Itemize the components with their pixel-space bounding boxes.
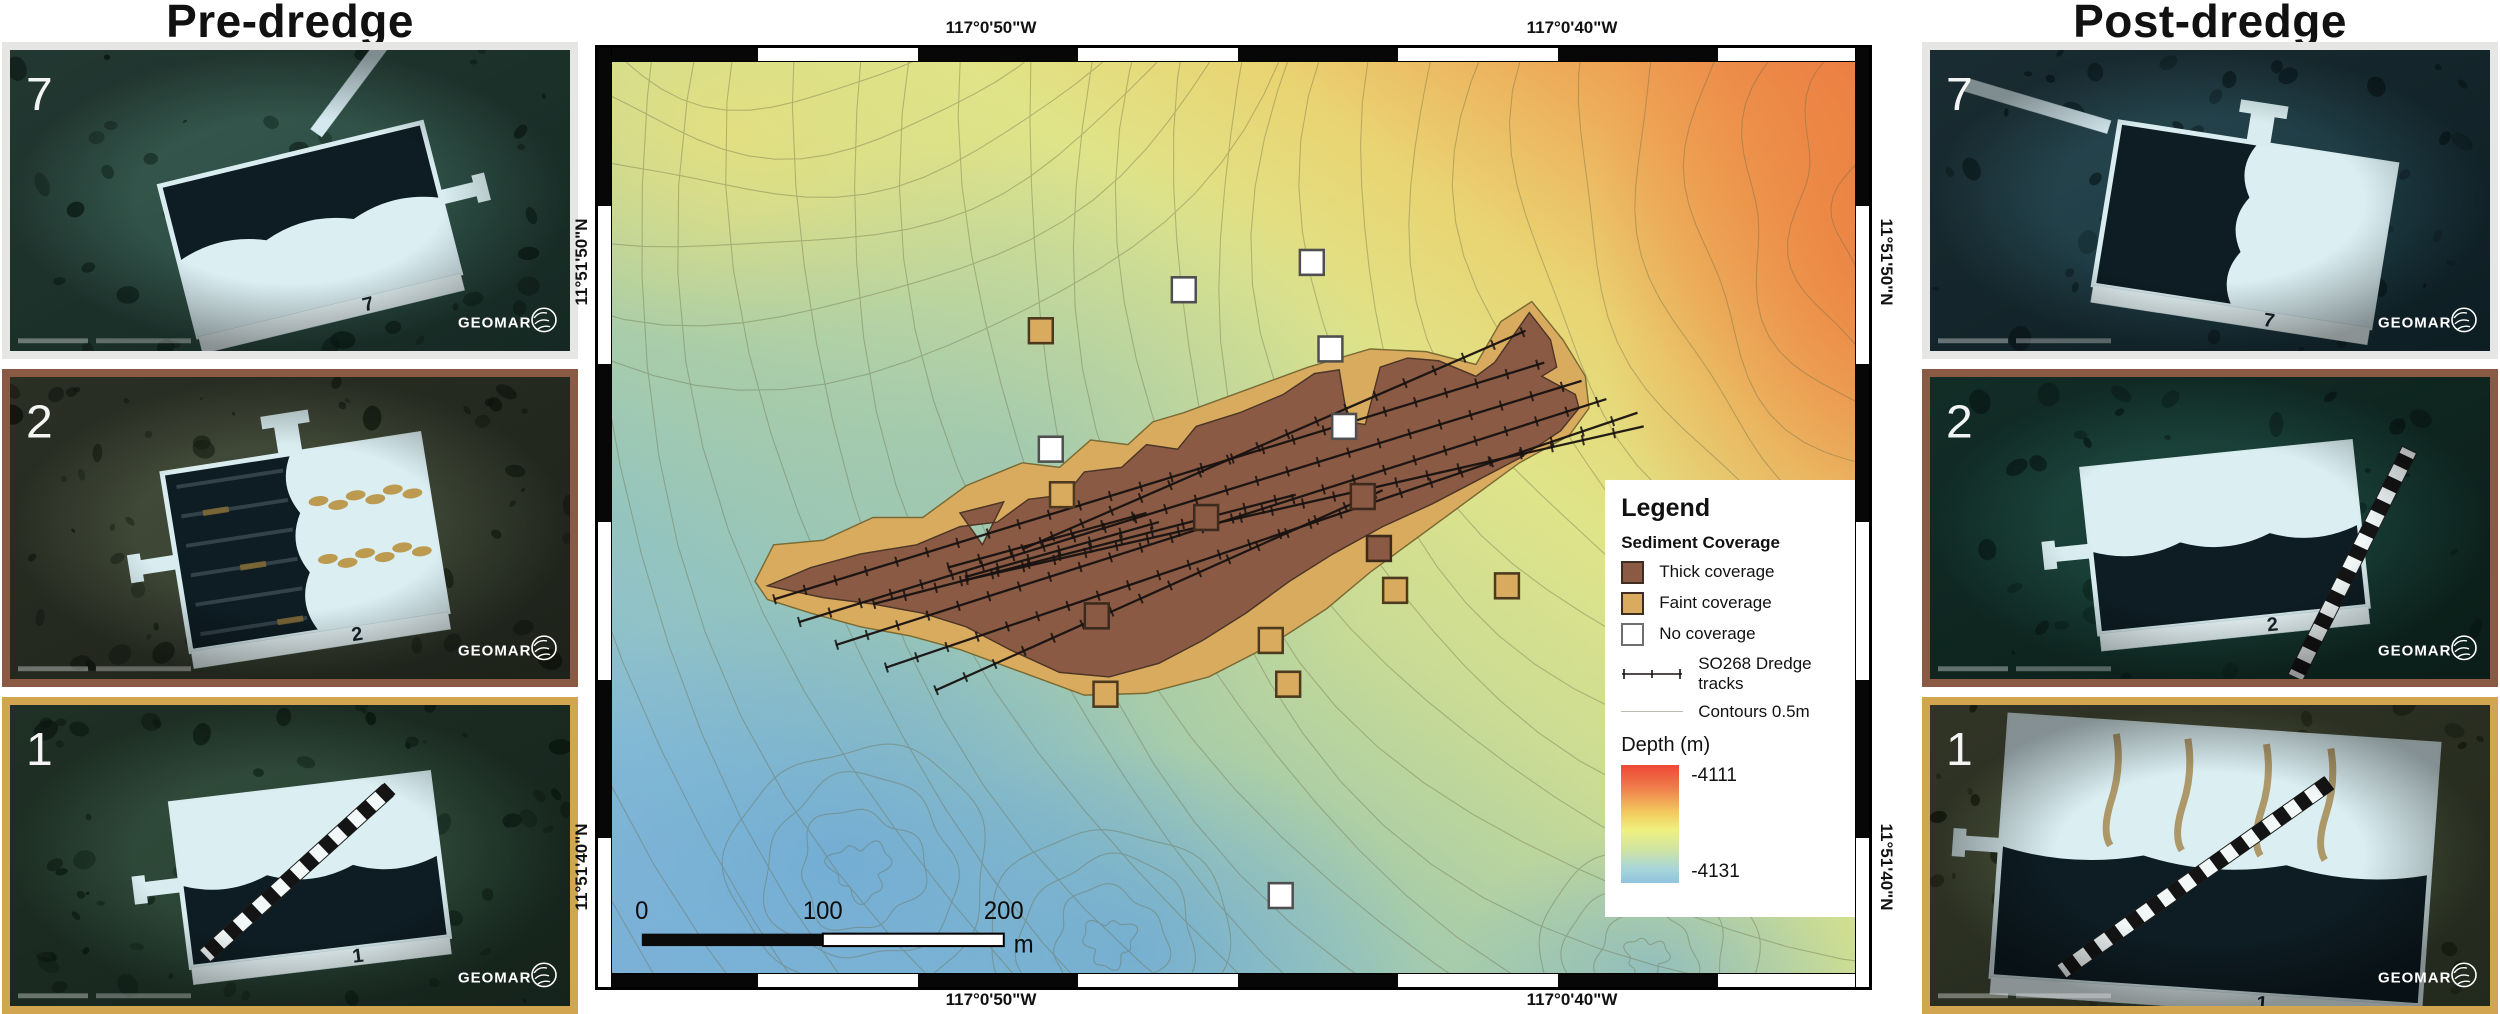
legend-item-contours: Contours 0.5m <box>1621 702 1842 722</box>
graticule-frame-bottom <box>597 973 1870 988</box>
sample-marker-none <box>1039 437 1063 462</box>
faint-coverage-label: Faint coverage <box>1659 593 1771 613</box>
photo-pre-1-frame: 11GEOMAR <box>2 697 578 1014</box>
sample-marker-faint <box>1094 682 1118 707</box>
svg-text:GEOMAR: GEOMAR <box>458 316 531 332</box>
svg-text:GEOMAR: GEOMAR <box>2378 644 2451 660</box>
sample-marker-thick <box>1367 536 1391 561</box>
photo-post-1-frame: 11GEOMAR <box>1922 697 2498 1014</box>
photo-pre-7: 77GEOMAR <box>10 50 570 351</box>
photo-post-7: 77GEOMAR <box>1930 50 2490 351</box>
no-coverage-label: No coverage <box>1659 624 1755 644</box>
svg-text:GEOMAR: GEOMAR <box>458 644 531 660</box>
sample-marker-faint <box>1495 573 1519 598</box>
legend-item-none: No coverage <box>1621 623 1842 646</box>
sample-marker-none <box>1269 883 1293 908</box>
figure: Pre-dredge 77GEOMAR 22GEOMAR 11GEOMAR Po… <box>0 0 2500 1014</box>
thick-coverage-swatch <box>1621 561 1644 584</box>
lon-label-top-left: 117°0'50"W <box>946 18 1037 38</box>
lat-label-left-bottom: 11°51'40"N <box>572 824 592 911</box>
sample-marker-none <box>1319 337 1343 362</box>
photo-pre-2-frame: 22GEOMAR <box>2 369 578 687</box>
post-dredge-title: Post-dredge <box>1922 0 2498 48</box>
contours-label: Contours 0.5m <box>1698 702 1810 722</box>
graticule-frame-left <box>597 47 612 988</box>
legend-item-faint: Faint coverage <box>1621 592 1842 615</box>
lon-label-bottom-left: 117°0'50"W <box>946 990 1037 1010</box>
lon-label-bottom-right: 117°0'40"W <box>1527 990 1618 1010</box>
svg-text:200: 200 <box>984 898 1024 926</box>
sample-marker-faint <box>1276 672 1300 697</box>
depth-ramp-row: -4111 -4131 <box>1621 765 1842 883</box>
photo-number-label: 1 <box>26 724 53 776</box>
faint-coverage-swatch <box>1621 592 1644 615</box>
graticule-frame-right <box>1855 47 1870 988</box>
photo-post-2: 22GEOMAR <box>1930 377 2490 679</box>
legend-section-title: Sediment Coverage <box>1621 533 1842 553</box>
legend-title: Legend <box>1621 494 1842 523</box>
depth-title: Depth (m) <box>1621 734 1842 757</box>
lat-label-right-bottom: 11°51'40"N <box>1876 824 1896 911</box>
photo-pre-7-frame: 77GEOMAR <box>2 42 578 359</box>
sample-marker-faint <box>1259 628 1283 653</box>
legend-item-tracks: SO268 Dredge tracks <box>1621 654 1842 694</box>
photo-number-label: 7 <box>1946 69 1973 121</box>
sample-marker-thick <box>1194 505 1218 530</box>
svg-text:100: 100 <box>803 898 843 926</box>
sample-marker-thick <box>1085 603 1109 628</box>
vignette <box>1930 705 2490 1006</box>
svg-text:GEOMAR: GEOMAR <box>2378 971 2451 987</box>
photo-post-1: 11GEOMAR <box>1930 705 2490 1006</box>
lat-label-right-top: 11°51'50"N <box>1876 219 1896 306</box>
svg-text:m: m <box>1014 931 1034 959</box>
vignette <box>10 50 570 351</box>
sample-marker-none <box>1300 250 1324 275</box>
graticule-frame-top <box>597 47 1870 62</box>
sample-marker-faint <box>1050 482 1074 507</box>
vignette <box>1930 50 2490 351</box>
photo-number-label: 2 <box>26 396 53 448</box>
photo-post-7-frame: 77GEOMAR <box>1922 42 2498 359</box>
svg-text:GEOMAR: GEOMAR <box>458 971 531 987</box>
vignette <box>10 377 570 679</box>
bathymetric-map: 0100200m Legend Sediment Coverage Thick … <box>595 45 1872 990</box>
sample-marker-faint <box>1383 578 1407 603</box>
dredge-tracks-label: SO268 Dredge tracks <box>1698 654 1842 694</box>
lat-label-left-top: 11°51'50"N <box>572 219 592 306</box>
legend-item-thick: Thick coverage <box>1621 561 1842 584</box>
svg-text:0: 0 <box>635 898 648 926</box>
sample-marker-none <box>1172 277 1196 302</box>
lon-label-top-right: 117°0'40"W <box>1527 18 1618 38</box>
photo-pre-1: 11GEOMAR <box>10 705 570 1006</box>
vignette <box>10 705 570 1006</box>
depth-max-label: -4111 <box>1691 765 1740 787</box>
contour-line-symbol <box>1621 711 1683 712</box>
photo-number-label: 2 <box>1946 396 1973 448</box>
thick-coverage-label: Thick coverage <box>1659 562 1774 582</box>
sample-marker-none <box>1332 414 1356 439</box>
map-legend: Legend Sediment Coverage Thick coverage … <box>1605 480 1858 918</box>
sample-marker-thick <box>1351 484 1375 509</box>
photo-post-2-frame: 22GEOMAR <box>1922 369 2498 687</box>
photo-number-label: 1 <box>1946 724 1973 776</box>
sample-marker-faint <box>1029 318 1053 343</box>
no-coverage-swatch <box>1621 623 1644 646</box>
vignette <box>1930 377 2490 679</box>
depth-color-ramp <box>1621 765 1679 883</box>
dredge-track-symbol <box>1621 667 1683 681</box>
pre-dredge-title: Pre-dredge <box>2 0 578 48</box>
photo-number-label: 7 <box>26 69 53 121</box>
depth-min-label: -4131 <box>1691 861 1740 883</box>
photo-pre-2: 22GEOMAR <box>10 377 570 679</box>
svg-text:GEOMAR: GEOMAR <box>2378 316 2451 332</box>
